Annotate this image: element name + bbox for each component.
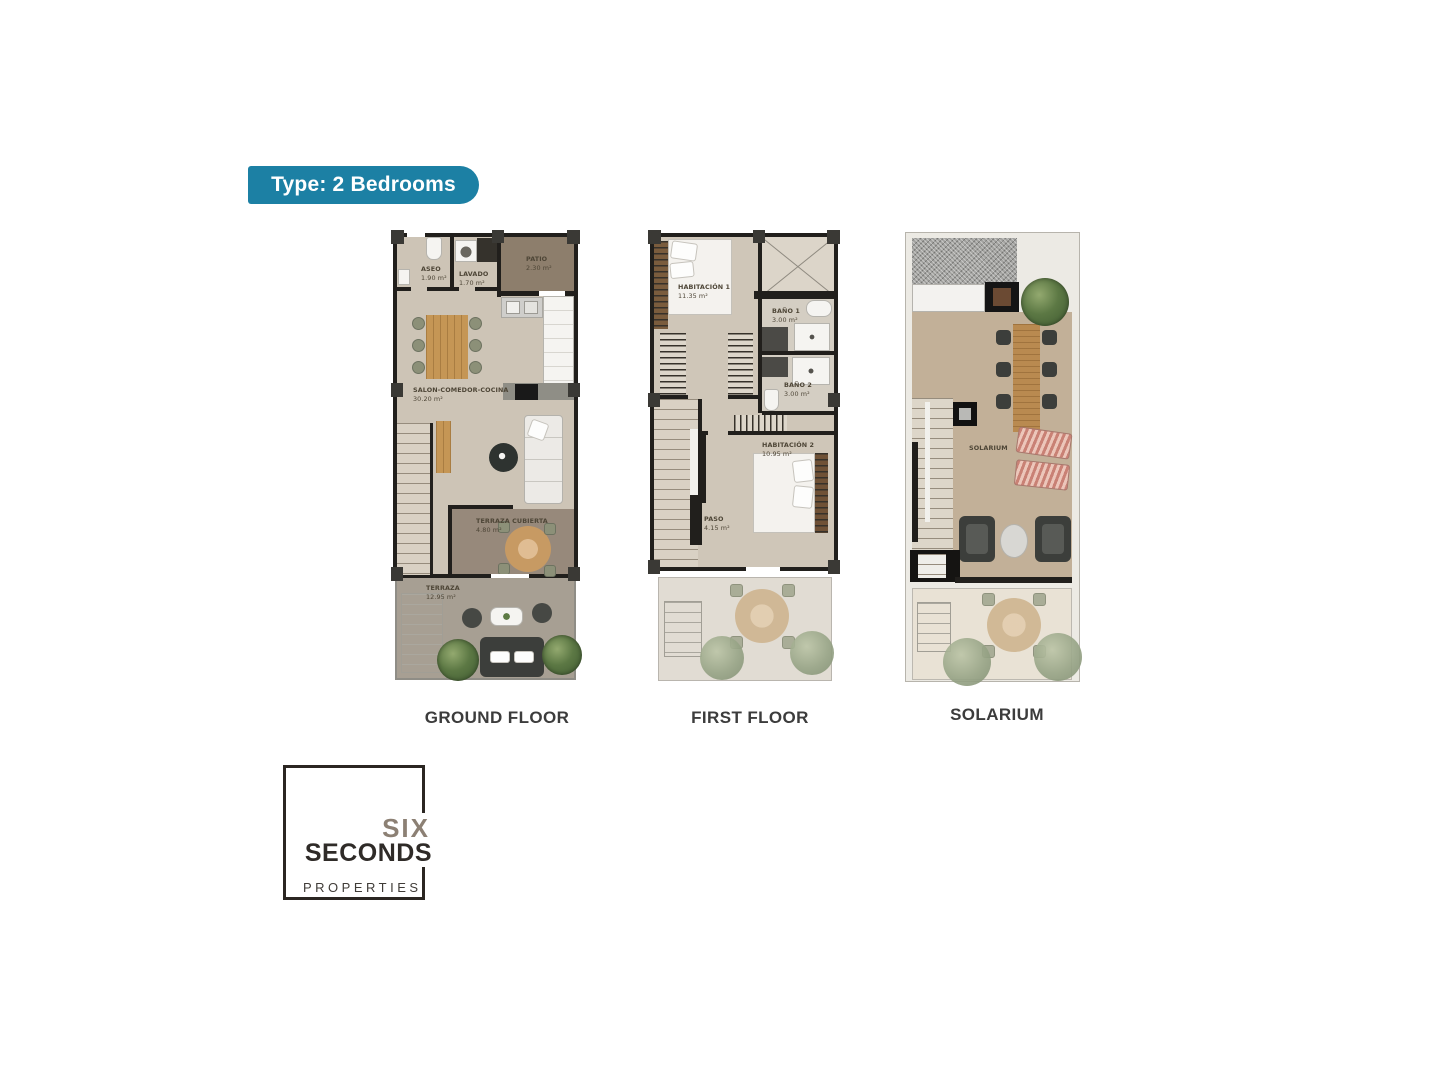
pouf: [532, 603, 552, 623]
floor-plan-solarium: SOLARIUM: [905, 232, 1080, 682]
chair: [996, 330, 1011, 345]
chair: [782, 584, 795, 597]
pillar: [391, 230, 404, 244]
chair: [469, 361, 482, 374]
window-opening: [746, 567, 780, 571]
pillar: [828, 560, 840, 574]
wall: [497, 237, 501, 297]
room-label-patio: PATIO2.30 m²: [526, 255, 552, 273]
stair-flight: [918, 554, 946, 578]
kitchen-counter: [503, 383, 574, 400]
wall: [955, 577, 1072, 583]
skylight-glass: [959, 408, 971, 420]
floor-title-solarium: SOLARIUM: [892, 705, 1102, 725]
vanity: [762, 357, 788, 377]
room-label-habitacion2: HABITACIÓN 210.95 m²: [762, 441, 814, 459]
bbq: [985, 282, 1019, 312]
bathtub: [806, 300, 832, 317]
wall: [758, 237, 762, 299]
window-opening: [491, 574, 529, 578]
outdoor-sofa: [480, 637, 544, 677]
pillar: [648, 560, 660, 574]
armchair: [1035, 516, 1071, 562]
pillar: [391, 567, 403, 581]
chair: [996, 362, 1011, 377]
cushion: [490, 651, 510, 663]
shower: [794, 323, 830, 351]
room-label-salon: SALON-COMEDOR-COCINA30.20 m²: [413, 386, 508, 404]
chair: [1042, 394, 1057, 409]
type-badge-label: Type: 2 Bedrooms: [271, 173, 456, 197]
coffee-table: [490, 607, 523, 626]
wall: [758, 299, 762, 413]
room-label-terraza: TERRAZA12.95 m²: [426, 584, 460, 602]
wall: [450, 237, 454, 291]
logo-properties: PROPERTIES: [303, 880, 422, 895]
pillar: [753, 230, 765, 243]
toilet: [426, 237, 442, 260]
side-table: [1000, 524, 1028, 558]
terrace-table-ghost: [987, 598, 1041, 652]
bed: [668, 239, 732, 315]
sideboard: [436, 421, 451, 473]
patio-void: [762, 237, 834, 295]
pillar: [567, 230, 580, 244]
door-opening: [688, 395, 728, 399]
pillar: [391, 383, 403, 397]
wall: [448, 505, 452, 574]
pillar: [648, 230, 661, 244]
plant: [700, 636, 744, 680]
wardrobe: [654, 241, 668, 329]
chair: [730, 584, 743, 597]
plant: [790, 631, 834, 675]
wardrobe: [728, 333, 753, 395]
pillar: [568, 567, 580, 581]
room-label-terraza-cubierta: TERRAZA CUBIERTA4.80 m²: [476, 517, 548, 535]
floor-plan-ground: ASEO1.90 m² LAVADO1.70 m² PATIO2.30 m² S…: [393, 233, 578, 682]
door-opening: [708, 431, 728, 435]
pillow: [669, 261, 695, 279]
plant: [943, 638, 991, 686]
room-label-lavado: LAVADO1.70 m²: [459, 270, 488, 288]
floor-title-first: FIRST FLOOR: [645, 708, 855, 728]
pillar: [648, 393, 660, 407]
wall: [754, 291, 834, 299]
sink-drainer: [524, 301, 538, 314]
room-label-bano1: BAÑO 13.00 m²: [772, 307, 800, 325]
pillar: [827, 230, 840, 244]
kitchen-sink: [501, 297, 543, 318]
door-opening: [411, 287, 427, 291]
staircase: [912, 398, 953, 560]
pillar: [492, 230, 504, 243]
dining-table: [426, 315, 468, 379]
toilet: [764, 389, 779, 411]
plant: [1021, 278, 1069, 326]
headboard: [815, 453, 828, 533]
stair-outline: [664, 601, 702, 657]
wall: [762, 351, 834, 355]
cushion: [526, 418, 549, 441]
pillow: [792, 485, 814, 509]
gravel-area: [912, 238, 1017, 284]
logo-seconds: SECONDS: [283, 839, 435, 868]
outdoor-counter: [912, 284, 985, 312]
washbasin: [398, 269, 410, 285]
room-label-habitacion1: HABITACIÓN 111.35 m²: [678, 283, 730, 301]
chair: [469, 339, 482, 352]
floor-plan-first: HABITACIÓN 111.35 m² BAÑO 13.00 m² BAÑO …: [650, 233, 838, 682]
plant: [1034, 633, 1082, 681]
wall: [448, 505, 513, 509]
entrance-opening: [407, 233, 425, 237]
bbq-grill: [993, 288, 1011, 306]
chair: [412, 317, 425, 330]
chair: [412, 339, 425, 352]
cushion: [514, 651, 534, 663]
wall: [762, 411, 834, 415]
room-label-bano2: BAÑO 23.00 m²: [784, 381, 812, 399]
floor-title-ground: GROUND FLOOR: [392, 708, 602, 728]
sun-lounger: [1014, 459, 1070, 491]
chair: [469, 317, 482, 330]
cooktop: [515, 384, 538, 400]
plant: [437, 639, 479, 681]
plant: [542, 635, 582, 675]
stair-outline: [917, 602, 951, 652]
chair: [982, 593, 995, 606]
room-label-aseo: ASEO1.90 m²: [421, 265, 447, 283]
wall: [690, 495, 702, 545]
armchair-cushion: [966, 524, 988, 554]
stairwell-walls: [910, 550, 960, 582]
wall: [698, 399, 702, 495]
bed: [753, 453, 815, 533]
round-rug: [489, 443, 518, 472]
room-label-paso: PASO4.15 m²: [704, 515, 730, 533]
stair-landing: [925, 402, 930, 522]
chair: [412, 361, 425, 374]
armchair: [959, 516, 995, 562]
chair: [1042, 362, 1057, 377]
pillar: [828, 393, 840, 407]
room-label-solarium: SOLARIUM: [969, 444, 1008, 453]
sofa: [524, 415, 563, 504]
wall: [702, 431, 706, 503]
wardrobe: [660, 333, 686, 395]
chair: [1042, 330, 1057, 345]
floorplan-sheet: Type: 2 Bedrooms: [0, 0, 1440, 1080]
chair: [544, 565, 556, 577]
sink-basin: [506, 301, 520, 314]
terrace-table-ghost: [735, 589, 789, 643]
chair: [996, 394, 1011, 409]
pillow: [792, 459, 815, 483]
window-opening: [539, 291, 565, 296]
pillow: [670, 240, 698, 261]
pillar: [568, 383, 580, 397]
pouf: [462, 608, 482, 628]
wall: [912, 442, 918, 542]
vanity: [762, 327, 788, 351]
washing-machine: [455, 240, 477, 262]
staircase: [397, 423, 433, 575]
kitchen-cabinets: [543, 296, 574, 384]
armchair-cushion: [1042, 524, 1064, 554]
solarium-table: [1013, 324, 1040, 432]
type-badge: Type: 2 Bedrooms: [248, 166, 479, 204]
chair: [1033, 593, 1046, 606]
skylight: [953, 402, 977, 426]
